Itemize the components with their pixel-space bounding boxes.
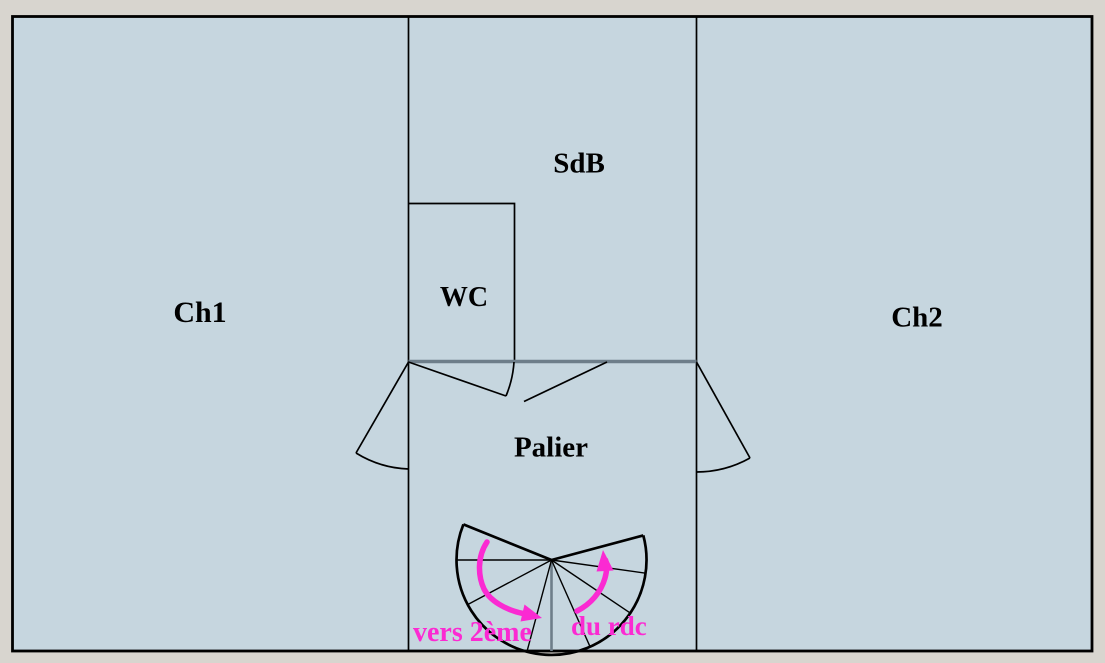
room-label-palier: Palier xyxy=(514,432,588,465)
room-label-ch2: Ch2 xyxy=(891,302,943,335)
stair-annotation-from-ground-floor: du rdc xyxy=(571,611,647,642)
floor-plan-page: Ch1 SdB WC Ch2 Palier vers 2ème du rdc xyxy=(0,0,1105,663)
room-label-wc: WC xyxy=(440,282,488,314)
room-label-ch1: Ch1 xyxy=(173,296,226,330)
stair-annotation-to-second-floor: vers 2ème xyxy=(413,617,532,649)
room-label-sdb: SdB xyxy=(553,148,605,181)
